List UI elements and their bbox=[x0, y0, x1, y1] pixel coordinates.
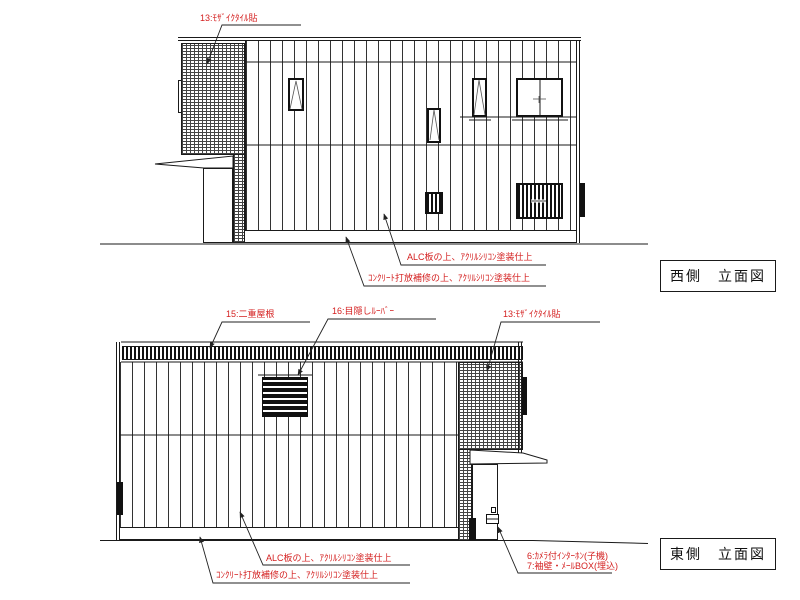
west-title: 西側 立面図 bbox=[670, 266, 766, 286]
west-label-alc: ALC板の上、ｱｸﾘﾙｼﾘｺﾝ塗装仕上 bbox=[407, 252, 533, 262]
west-label-mosaic-tile: 13:ﾓｻﾞｲｸﾀｲﾙ貼 bbox=[200, 13, 258, 23]
east-foundation-band bbox=[120, 529, 458, 540]
west-sliding-window bbox=[516, 78, 563, 117]
west-casement-window-3 bbox=[472, 78, 487, 117]
east-title: 東側 立面図 bbox=[670, 544, 766, 564]
west-foundation-band bbox=[245, 231, 576, 243]
east-base-fixture bbox=[469, 518, 476, 540]
west-label-concrete: ｺﾝｸﾘｰﾄ打放補修の上、ｱｸﾘﾙｼﾘｺﾝ塗装仕上 bbox=[368, 273, 530, 283]
east-label-privacy-louver: 16:目隠しﾙｰﾊﾞｰ bbox=[332, 306, 394, 316]
elevation-drawing-sheet: 13:ﾓｻﾞｲｸﾀｲﾙ貼 ALC板の上、ｱｸﾘﾙｼﾘｺﾝ塗装仕上 ｺﾝｸﾘｰﾄ打… bbox=[0, 0, 800, 600]
east-label-alc: ALC板の上、ｱｸﾘﾙｼﾘｺﾝ塗装仕上 bbox=[266, 553, 392, 563]
east-mosaic-tile-block bbox=[458, 362, 523, 450]
east-mailbox-unit bbox=[486, 514, 499, 524]
east-double-roof-band bbox=[122, 346, 523, 360]
east-label-intercom: 6:ｶﾒﾗ付ｲﾝﾀｰﾎﾝ(子機) bbox=[527, 551, 608, 561]
east-label-double-roof: 15:二重屋根 bbox=[226, 309, 275, 319]
east-intercom-unit bbox=[491, 507, 496, 513]
west-title-box: 西側 立面図 bbox=[660, 260, 776, 292]
west-edge-fixture bbox=[178, 80, 182, 113]
west-louver-large bbox=[516, 183, 563, 219]
east-privacy-louver bbox=[262, 377, 308, 417]
east-canopy bbox=[470, 450, 547, 464]
west-casement-window-2 bbox=[427, 108, 441, 143]
east-label-mailbox: 7:袖壁・ﾒｰﾙBOX(埋込) bbox=[527, 561, 618, 571]
west-mosaic-tile-strip bbox=[233, 155, 245, 243]
west-concrete-wall bbox=[203, 168, 233, 243]
west-mosaic-tile-block bbox=[181, 43, 245, 155]
east-title-box: 東側 立面図 bbox=[660, 538, 776, 570]
east-label-concrete: ｺﾝｸﾘｰﾄ打放補修の上、ｱｸﾘﾙｼﾘｺﾝ塗装仕上 bbox=[216, 570, 378, 580]
east-label-mosaic-tile: 13:ﾓｻﾞｲｸﾀｲﾙ貼 bbox=[503, 309, 561, 319]
east-downpipe bbox=[522, 377, 527, 415]
west-canopy bbox=[155, 156, 233, 168]
east-edge-fixture bbox=[117, 482, 123, 515]
west-casement-window-1 bbox=[288, 78, 304, 111]
west-louver-small bbox=[425, 192, 443, 214]
west-downpipe bbox=[580, 183, 585, 217]
